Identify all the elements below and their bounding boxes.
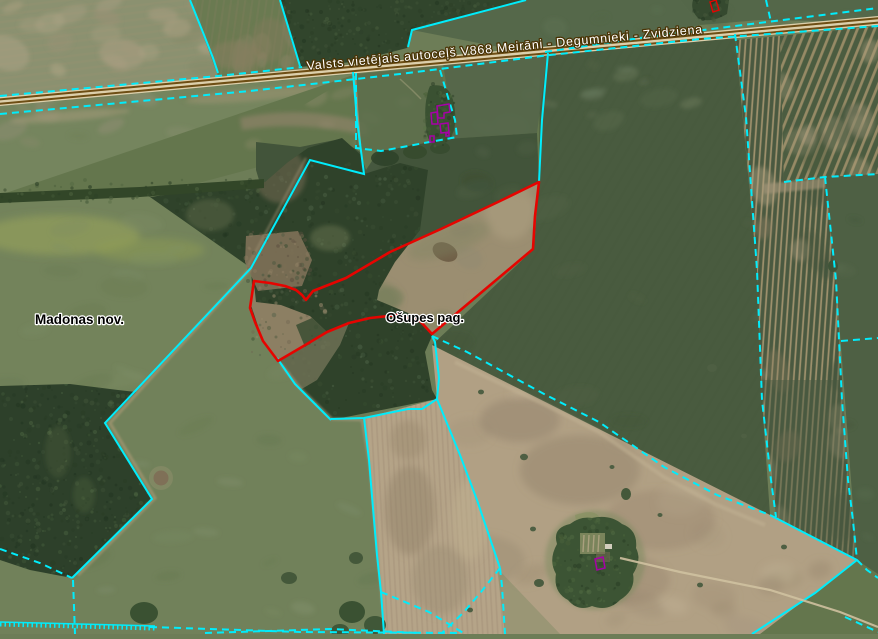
svg-text:Ošupes pag.: Ošupes pag. <box>386 310 464 325</box>
svg-text:Madonas nov.: Madonas nov. <box>35 312 124 327</box>
